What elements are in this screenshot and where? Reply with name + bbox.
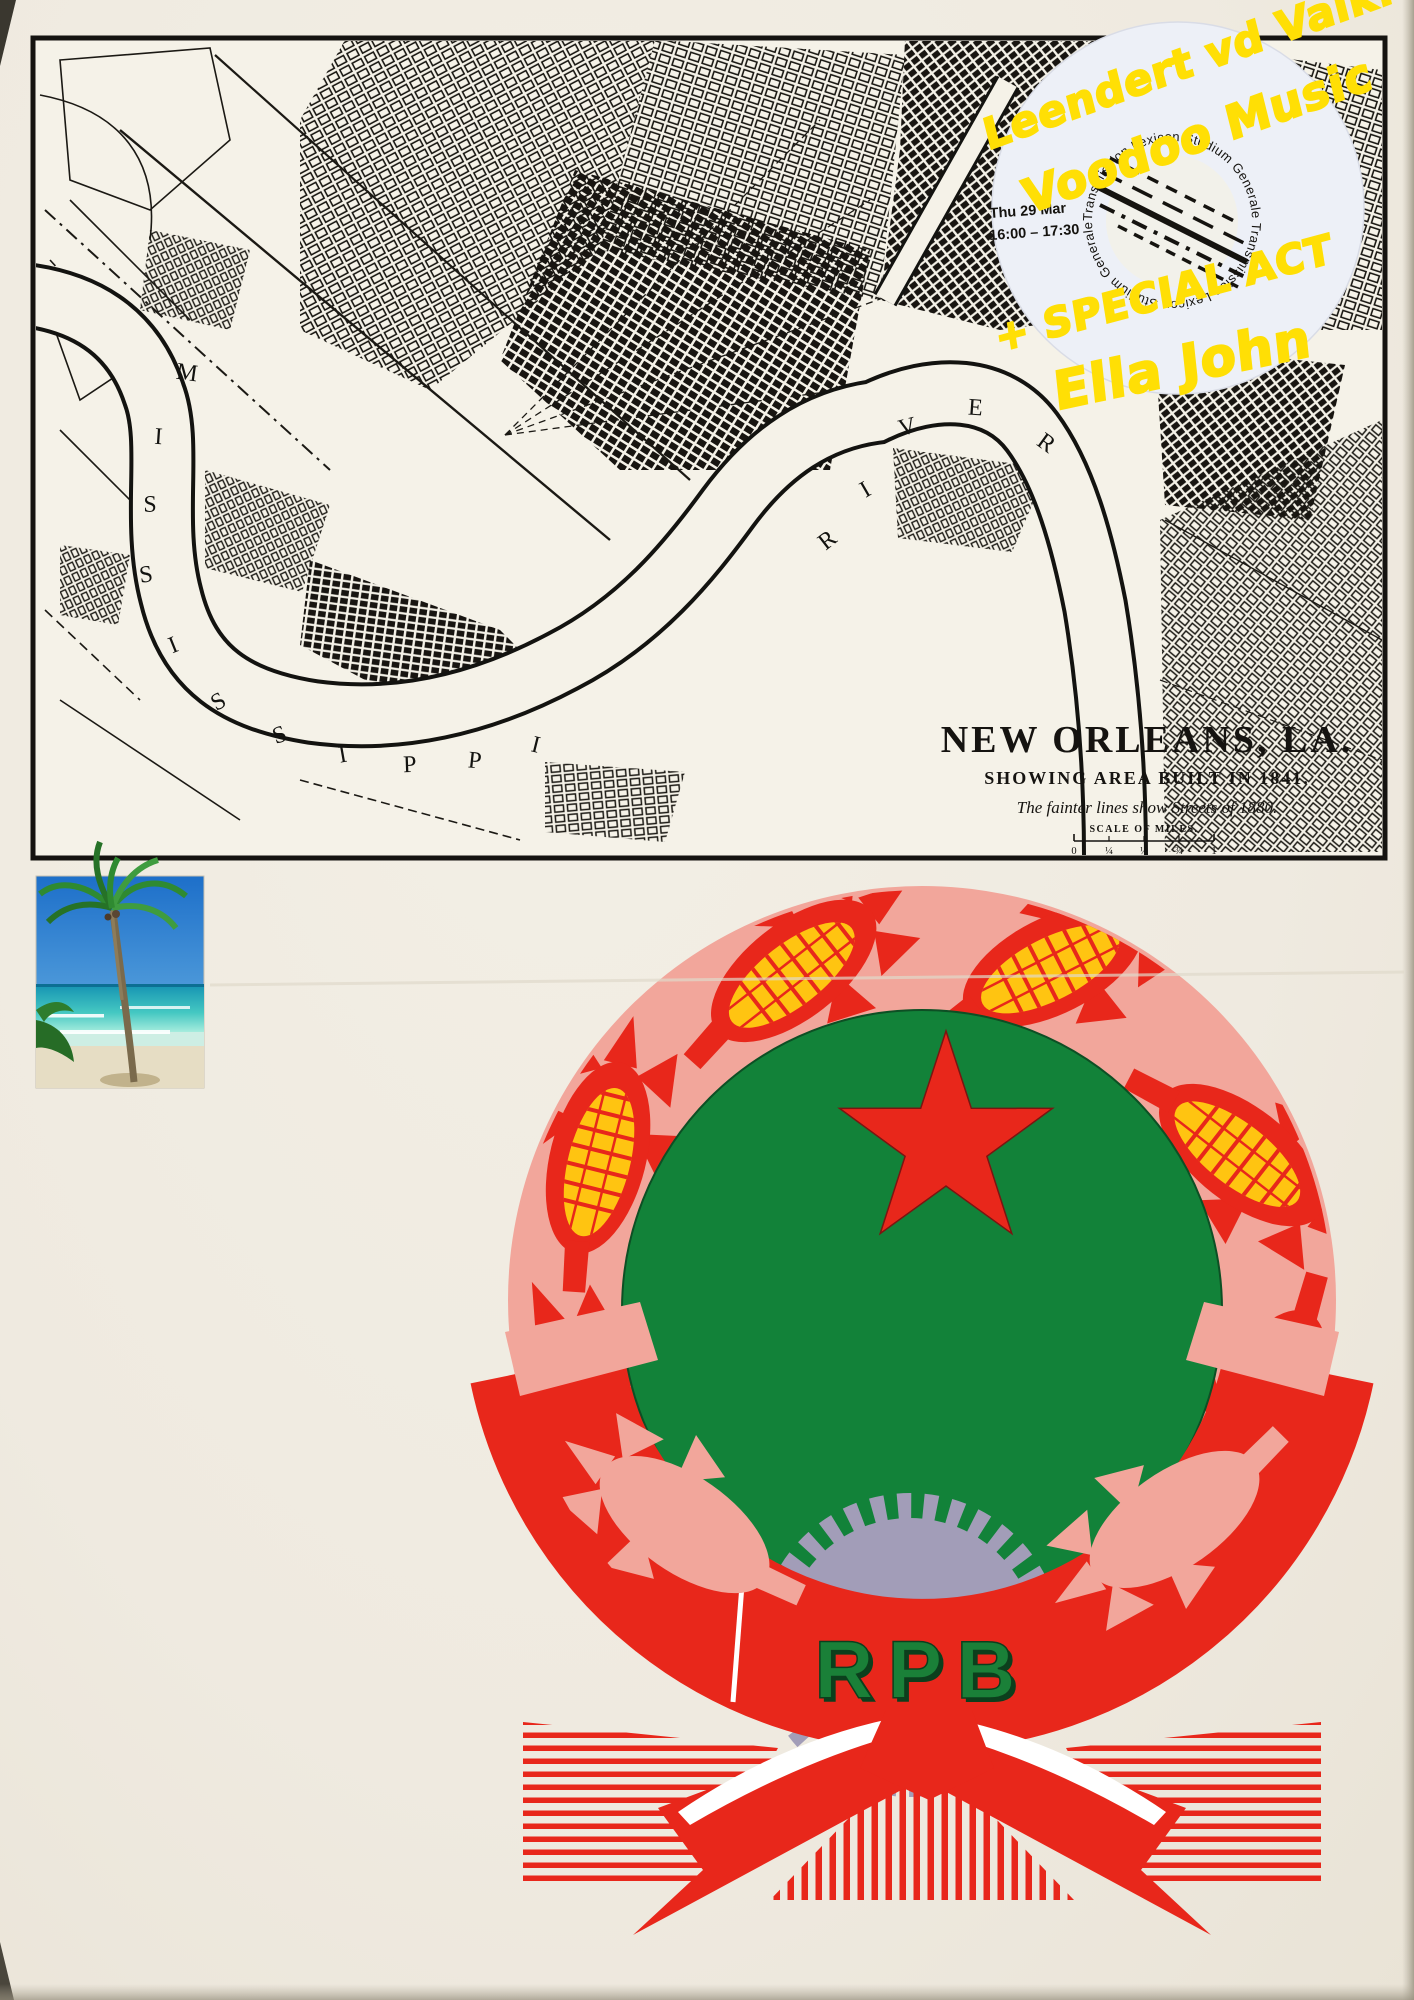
district (60, 545, 130, 625)
photo-wave (120, 1006, 190, 1009)
river-letter: P (467, 747, 483, 774)
map-note: The fainter lines show Streets of 1880. (1017, 798, 1278, 817)
corner-shadow (0, 0, 16, 66)
rpb-emblem: RPB RPB (459, 818, 1406, 1935)
river-letter: M (175, 359, 200, 388)
poster-page: M I S S I S S I P P I R I V E R (0, 0, 1414, 2000)
palm-beach-photo (36, 842, 204, 1088)
edge-shadow-bottom (0, 1984, 1414, 2000)
edge-shadow-right (1402, 0, 1414, 2000)
river-letter: E (967, 395, 983, 422)
emblem-initials: RPB (814, 1625, 1029, 1716)
photo-wave (44, 1014, 104, 1018)
district (545, 762, 685, 842)
river-letter: P (403, 752, 417, 778)
coconut (105, 914, 112, 921)
river-letter: S (143, 492, 156, 518)
map-scale-label: SCALE OF MILES. (1089, 824, 1198, 835)
photo-wave (60, 1030, 170, 1034)
map-subtitle: SHOWING AREA BUILT IN 1841. (984, 768, 1310, 788)
coconut (112, 910, 120, 918)
map-title: NEW ORLEANS, LA. (941, 719, 1354, 761)
poster-artwork: M I S S I S S I P P I R I V E R (0, 0, 1414, 2000)
